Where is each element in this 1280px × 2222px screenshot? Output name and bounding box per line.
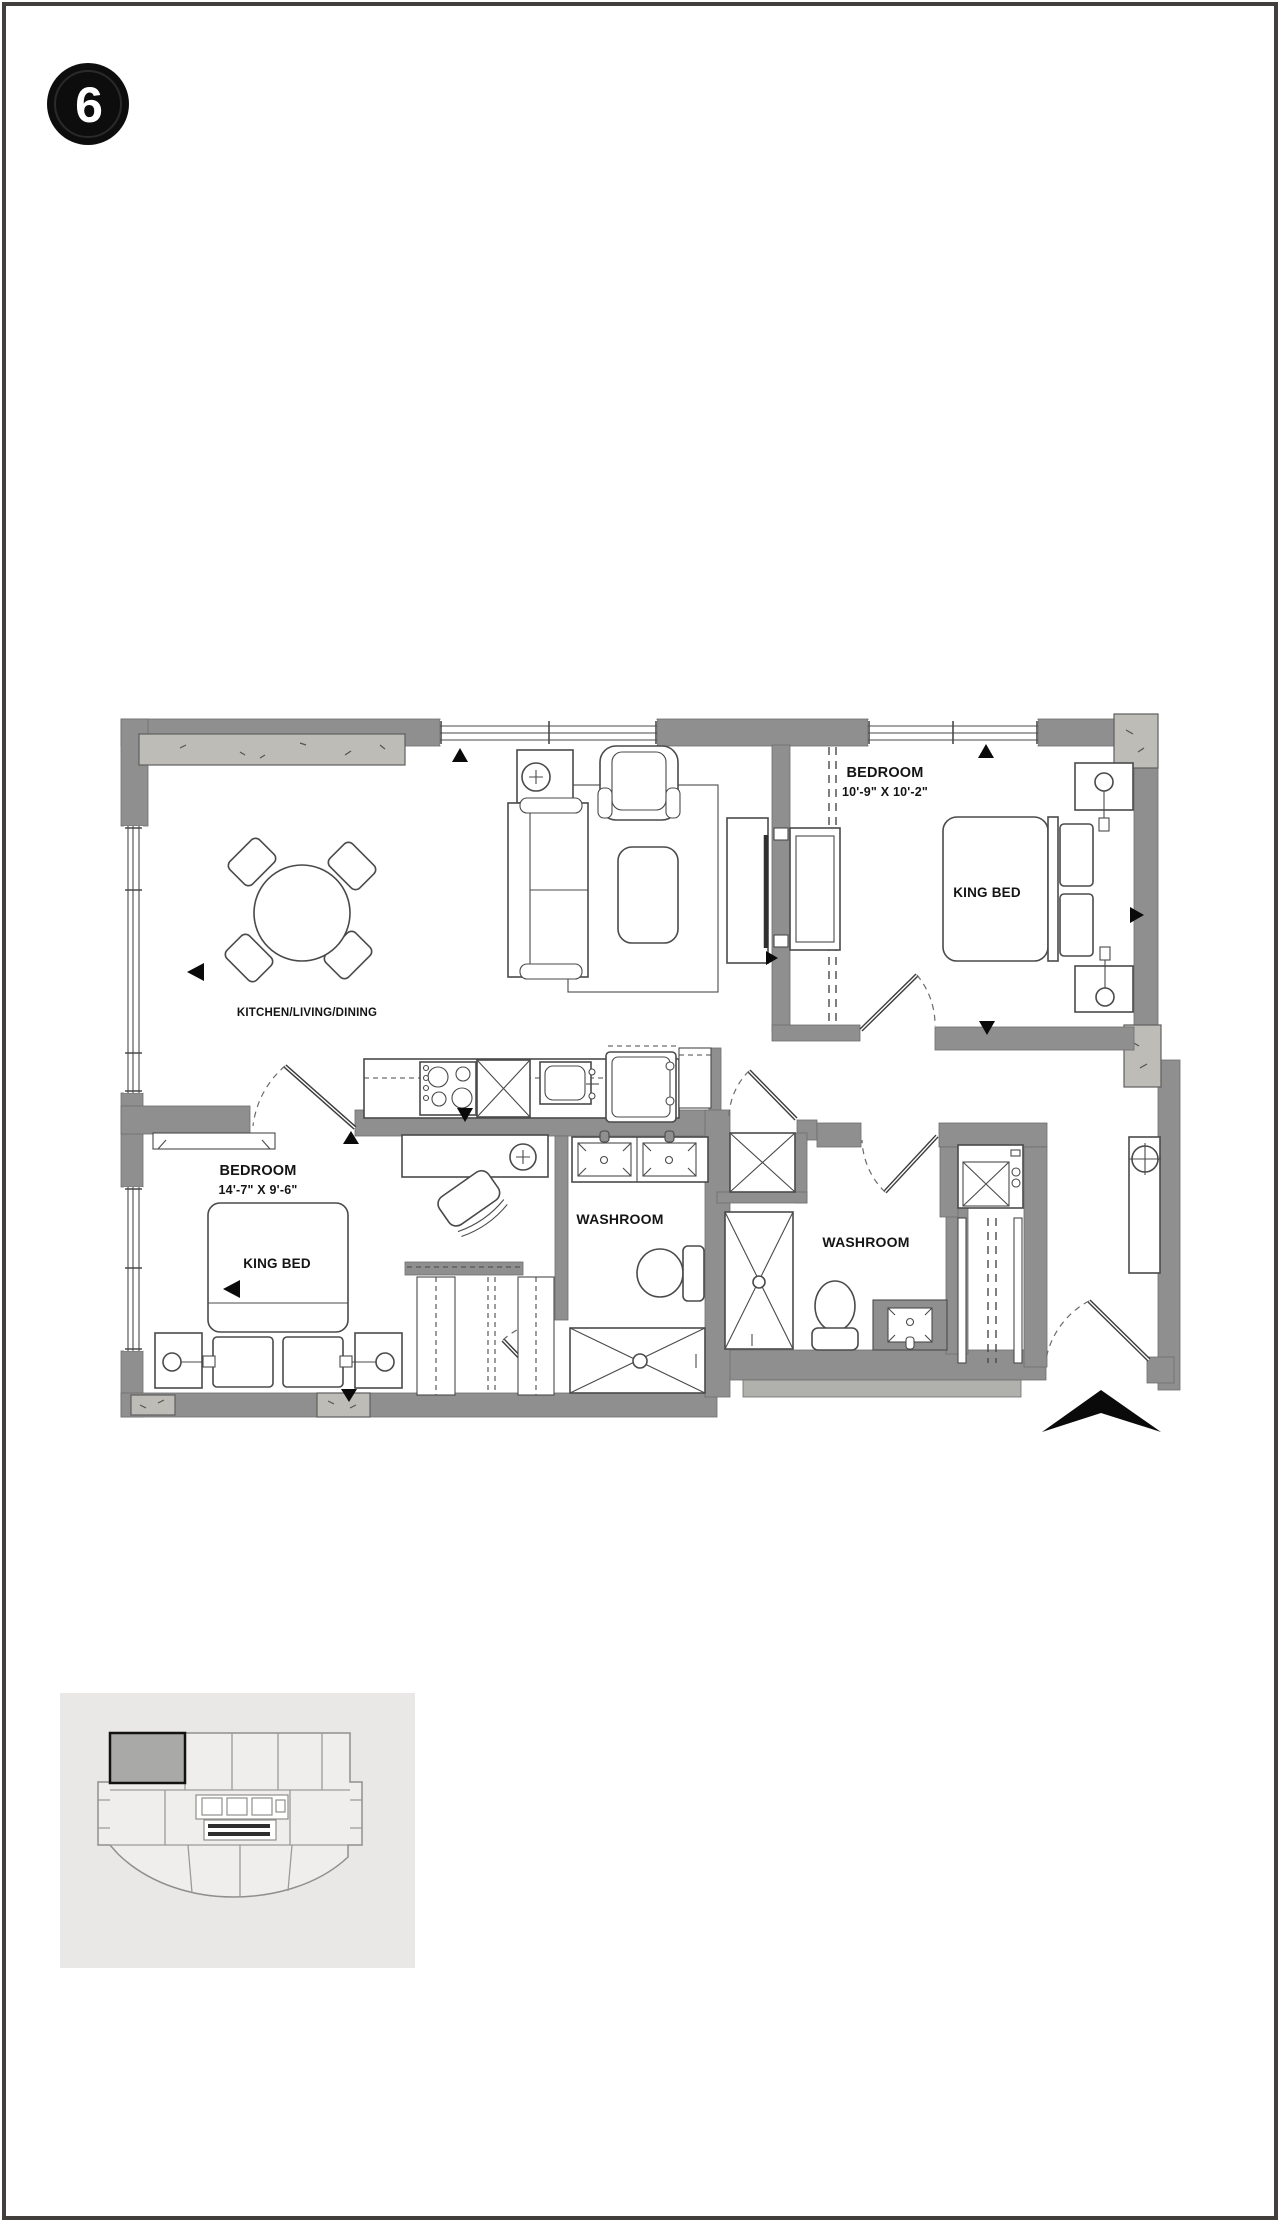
toilet [812, 1281, 858, 1350]
bedroom2-closet [407, 1267, 554, 1395]
door-entry [1046, 1301, 1149, 1360]
closet-shelf [153, 1133, 275, 1149]
label-washroom-main: WASHROOM [822, 1234, 909, 1250]
nightstand [340, 1333, 402, 1388]
shower [725, 1212, 793, 1349]
kitchen [364, 1046, 711, 1122]
door-bedroom1 [861, 975, 935, 1030]
dishwasher [477, 1060, 530, 1117]
foyer [1129, 1137, 1161, 1273]
door-corridor [729, 1071, 796, 1119]
linen-closet [730, 1133, 795, 1192]
door-bedroom2 [253, 1066, 355, 1128]
nightstand [155, 1333, 215, 1388]
toilet [637, 1246, 704, 1301]
floor-plan: KITCHEN/LIVING/DINING BEDROOM 10'-9" X 1… [121, 714, 1180, 1432]
stacked-washer [958, 1145, 1023, 1208]
double-vanity [572, 1131, 708, 1182]
window-top-bedroom1 [868, 720, 1038, 745]
north-arrow-icon [1042, 1390, 1161, 1432]
label-king-bed-2: KING BED [243, 1256, 311, 1271]
door-washroom-main [862, 1136, 937, 1192]
washroom-ensuite-fixtures [570, 1131, 708, 1393]
kitchen-sink [540, 1062, 599, 1104]
living-room-furniture [508, 746, 768, 992]
key-plan [60, 1693, 415, 1968]
label-bedroom2: BEDROOM [219, 1163, 296, 1179]
key-plan-highlighted-unit [110, 1733, 185, 1783]
sofa [508, 798, 588, 979]
pantry-cabinet [679, 1048, 711, 1108]
fridge [606, 1046, 676, 1122]
floor-plan-page: 6 [0, 0, 1280, 2222]
utility-shaft [1129, 1137, 1161, 1273]
cooktop [420, 1062, 476, 1115]
wall-niche [774, 935, 788, 947]
label-bedroom2-dimensions: 14'-7" X 9'-6" [219, 1183, 298, 1197]
dresser [790, 828, 840, 950]
dining-table [254, 865, 350, 961]
vanity-sink [873, 1300, 947, 1350]
desk-nook [402, 1135, 548, 1241]
unit-number: 6 [75, 77, 103, 133]
armchair [598, 746, 680, 820]
label-washroom-ensuite: WASHROOM [576, 1211, 663, 1227]
side-table [517, 750, 573, 803]
tv-console [727, 818, 768, 963]
label-kitchen-living-dining: KITCHEN/LIVING/DINING [237, 1007, 377, 1019]
shower [570, 1328, 705, 1393]
key-plan-core [196, 1795, 288, 1840]
dining-set [223, 836, 378, 984]
nightstand [1075, 763, 1133, 831]
label-bedroom1: BEDROOM [846, 765, 923, 781]
coffee-table [618, 847, 678, 943]
label-bedroom1-dimensions: 10'-9" X 10'-2" [842, 785, 928, 799]
wall-niche [774, 828, 788, 840]
window-left-bedroom2 [124, 1187, 143, 1351]
unit-number-badge: 6 [47, 63, 129, 145]
label-king-bed-1: KING BED [953, 885, 1021, 900]
king-bed-2 [208, 1203, 348, 1387]
desk-chair [435, 1167, 512, 1241]
window-left-living [124, 826, 143, 1093]
window-top-living [440, 720, 657, 745]
